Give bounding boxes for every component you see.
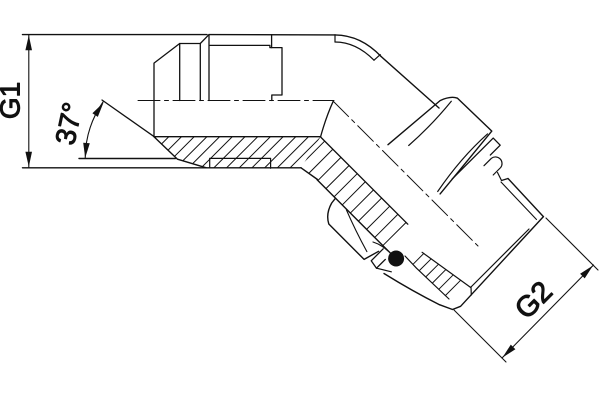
- svg-text:37°: 37°: [49, 100, 88, 148]
- svg-text:G1: G1: [0, 82, 25, 119]
- svg-text:G2: G2: [509, 276, 559, 326]
